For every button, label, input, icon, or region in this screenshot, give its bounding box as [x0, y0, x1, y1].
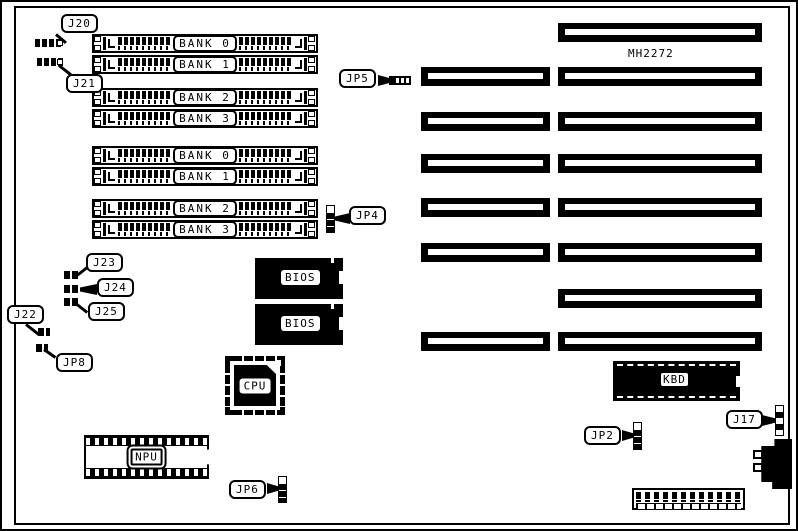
pin-band [118, 91, 171, 104]
jumper-label-jp4: JP4 [349, 206, 386, 225]
pin-band [118, 202, 171, 215]
motherboard-diagram: BANK 0 BANK 1 BANK 2 BANK 3 BANK 0 BANK … [0, 0, 798, 531]
jumper-label-j23: J23 [86, 253, 123, 272]
jumper-label-jp8: JP8 [56, 353, 93, 372]
simm-slot: BANK 0 [92, 146, 318, 165]
latch-icon [108, 204, 115, 213]
isa-slot [558, 332, 762, 351]
bank-label: BANK 3 [173, 221, 237, 238]
pin-band [239, 91, 292, 104]
bios-chip-label: BIOS [281, 270, 320, 285]
pin-band [239, 112, 292, 125]
pin1-marker [275, 360, 281, 366]
jumper-label-j25: J25 [88, 302, 125, 321]
pin-band [118, 112, 171, 125]
pin-band [239, 170, 292, 183]
chip-notch [201, 450, 216, 465]
npu-socket: NPU [84, 435, 209, 479]
isa-slot-extension [421, 332, 550, 351]
pin-row [86, 437, 207, 446]
latch-icon [295, 151, 302, 160]
isa-slot [558, 289, 762, 308]
bank-label: BANK 2 [173, 200, 237, 217]
keyboard-din-connector [760, 439, 792, 489]
jumper-label-j21: J21 [66, 74, 103, 93]
bank-label: BANK 0 [173, 147, 237, 164]
slot-end-cap [94, 111, 102, 126]
slot-end-cap [94, 148, 102, 163]
latch-icon [295, 225, 302, 234]
latch-icon [295, 172, 302, 181]
pin-band [118, 223, 171, 236]
slot-end-cap [308, 169, 316, 184]
slot-end-cap [308, 90, 316, 105]
power-connector [632, 488, 745, 510]
pin-band [118, 170, 171, 183]
pin-row [86, 468, 207, 477]
model-number: MH2272 [628, 47, 674, 60]
isa-slot [558, 154, 762, 173]
jumper-label-jp2: JP2 [584, 426, 621, 445]
isa-slot [558, 67, 762, 86]
pin-header-j17 [775, 405, 784, 436]
pin-header-jp5 [389, 76, 411, 85]
latch-icon [108, 225, 115, 234]
latch-icon [295, 39, 302, 48]
pin-band [118, 149, 171, 162]
slot-end-cap [308, 36, 316, 51]
isa-slot-extension [421, 67, 550, 86]
isa-slot [558, 198, 762, 217]
latch-icon [108, 93, 115, 102]
pin-header-j24 [64, 285, 80, 293]
jumper-label-jp5: JP5 [339, 69, 376, 88]
simm-slot: BANK 2 [92, 199, 318, 218]
din-mount-tab [753, 463, 763, 472]
pin-band [239, 58, 292, 71]
slot-end-cap [308, 148, 316, 163]
isa-slot-extension [421, 112, 550, 131]
simm-slot: BANK 1 [92, 55, 318, 74]
slot-end-cap [94, 169, 102, 184]
jumper-label-j17: J17 [726, 410, 763, 429]
pin-band [118, 58, 171, 71]
simm-slot: BANK 3 [92, 109, 318, 128]
isa-slot [558, 243, 762, 262]
jumper-label-j24: J24 [97, 278, 134, 297]
bank-label: BANK 3 [173, 110, 237, 127]
pin-header-j20 [35, 39, 63, 47]
kbd-label: KBD [661, 373, 688, 386]
latch-icon [295, 93, 302, 102]
isa-slot-extension [421, 243, 550, 262]
pin-band [239, 202, 292, 215]
power-pin-row [636, 492, 741, 499]
cpu-socket: CPU [225, 356, 285, 415]
isa-slot [558, 112, 762, 131]
slot-end-cap [308, 222, 316, 237]
pin-band [239, 37, 292, 50]
pin-band [118, 37, 171, 50]
latch-icon [108, 172, 115, 181]
latch-icon [108, 39, 115, 48]
slot-end-cap [308, 111, 316, 126]
simm-slot: BANK 0 [92, 34, 318, 53]
jumper-label-j20: J20 [61, 14, 98, 33]
bios-chip-bottom: BIOS [255, 304, 343, 345]
isa-slot [558, 23, 762, 42]
simm-slot: BANK 3 [92, 220, 318, 239]
latch-icon [108, 60, 115, 69]
pin-header-jp4 [326, 205, 335, 233]
isa-slot-extension [421, 198, 550, 217]
bank-label: BANK 1 [173, 56, 237, 73]
isa-slot-extension [421, 154, 550, 173]
slot-end-cap [308, 57, 316, 72]
slot-end-cap [94, 201, 102, 216]
bios-chip-label: BIOS [281, 316, 320, 331]
npu-label: NPU [130, 449, 163, 466]
pin-header-jp6 [278, 476, 287, 503]
latch-icon [108, 151, 115, 160]
pin-header-j22 [38, 328, 50, 336]
din-mount-tab [753, 450, 763, 459]
jumper-label-j22: J22 [7, 305, 44, 324]
latch-icon [295, 60, 302, 69]
bank-label: BANK 1 [173, 168, 237, 185]
keyboard-controller-chip: KBD [613, 361, 740, 401]
power-pin-row [636, 503, 741, 510]
cpu-label: CPU [240, 378, 271, 393]
bios-chip-top: BIOS [255, 258, 343, 299]
slot-end-cap [94, 222, 102, 237]
jumper-label-jp6: JP6 [229, 480, 266, 499]
simm-slot: BANK 1 [92, 167, 318, 186]
slot-end-cap [94, 57, 102, 72]
bank-label: BANK 0 [173, 35, 237, 52]
slot-end-cap [308, 201, 316, 216]
pin-header-jp2 [633, 422, 642, 450]
latch-icon [295, 114, 302, 123]
simm-slot: BANK 2 [92, 88, 318, 107]
pin-band [239, 223, 292, 236]
slot-end-cap [94, 36, 102, 51]
bank-label: BANK 2 [173, 89, 237, 106]
latch-icon [295, 204, 302, 213]
latch-icon [108, 114, 115, 123]
pin-band [239, 149, 292, 162]
